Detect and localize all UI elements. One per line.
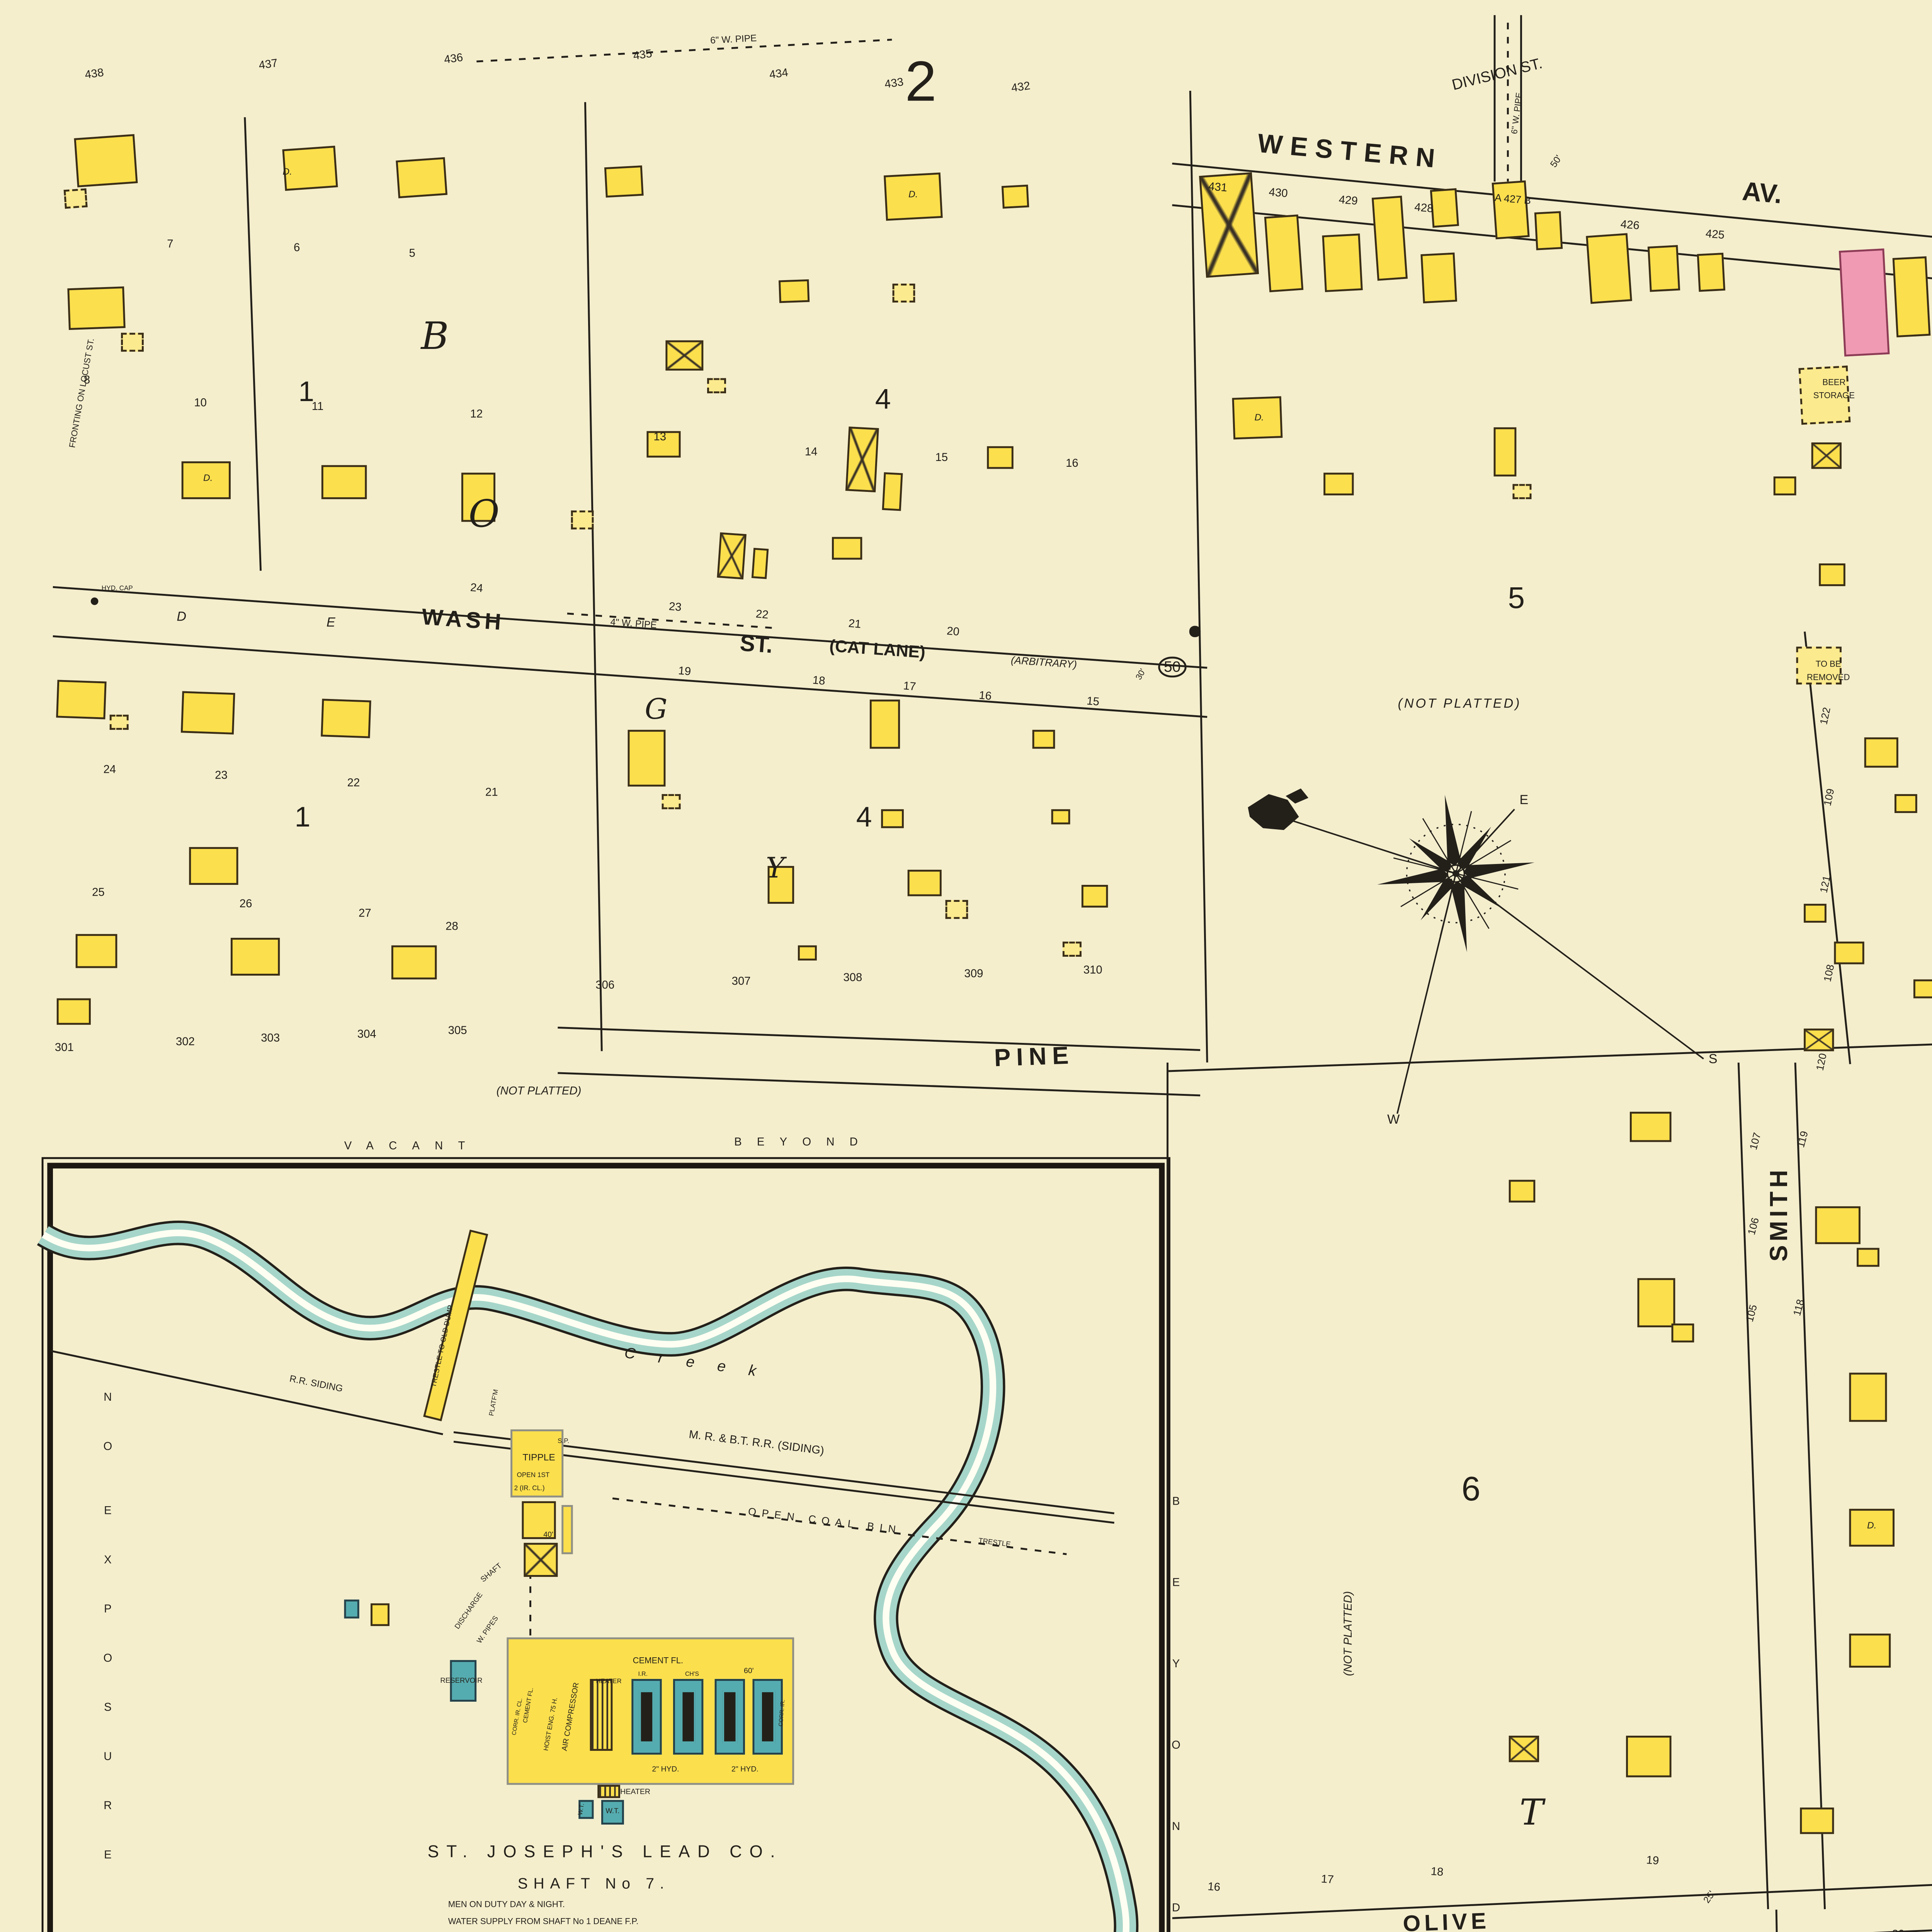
compass-s: S	[1709, 1054, 1718, 1068]
plat-note: (NOT PLATTED)	[1344, 1591, 1356, 1676]
building-footprint	[1774, 476, 1796, 495]
building-footprint	[597, 1785, 620, 1798]
lot-number: 302	[176, 1038, 195, 1050]
building-footprint	[1264, 214, 1304, 292]
building-footprint	[1638, 1278, 1675, 1327]
building-footprint	[561, 1505, 573, 1554]
building-footprint	[1834, 942, 1864, 964]
lot-number: 430	[1268, 188, 1288, 202]
block-letter: E	[327, 617, 335, 631]
building-footprint	[1494, 427, 1517, 476]
lot-number: 14	[805, 448, 818, 460]
lot-number: 306	[595, 981, 614, 993]
vert-letter: E	[104, 1851, 112, 1863]
lot-number: 20	[946, 627, 960, 640]
lot-number: 13	[653, 433, 666, 445]
lot-number: 19	[678, 667, 691, 680]
street-label-wash-st: ST.	[739, 632, 774, 658]
block-number: 4	[856, 804, 872, 833]
lot-number: 305	[448, 1026, 467, 1038]
building-footprint	[371, 1603, 389, 1626]
biz-label: BEER	[1822, 379, 1845, 388]
lot-number: 25	[92, 888, 105, 900]
block-number: 1	[294, 804, 310, 833]
building-footprint	[1586, 233, 1632, 304]
building-footprint	[57, 998, 91, 1025]
vert-letter: O	[103, 1654, 112, 1666]
building-footprint	[524, 1543, 558, 1577]
building-footprint	[1626, 1736, 1671, 1777]
plat-note: (NOT PLATTED)	[1398, 698, 1522, 712]
note: 2" HYD.	[731, 1766, 759, 1774]
lot-number: 19	[1646, 1856, 1659, 1869]
building-footprint	[1430, 188, 1459, 228]
note: CH'S	[685, 1672, 699, 1678]
lot-number: 7	[167, 240, 173, 252]
building-footprint	[1492, 180, 1530, 240]
compass-rose-icon	[1191, 671, 1759, 1144]
eagle-icon	[1248, 788, 1309, 830]
building-footprint	[946, 900, 968, 919]
building-footprint	[832, 537, 862, 560]
lot-number: 23	[668, 602, 682, 616]
company-note: MEN ON DUTY DAY & NIGHT.	[448, 1901, 565, 1910]
note: HEATER	[620, 1789, 650, 1796]
vert-letter: E	[104, 1507, 112, 1519]
lot-number: 17	[903, 682, 916, 695]
lot-number: 22	[755, 610, 769, 623]
building-footprint	[1420, 252, 1457, 303]
lot-number: 303	[261, 1034, 280, 1046]
vert-letter: N	[1172, 1822, 1180, 1834]
street-label-smith: SMITH	[1766, 1166, 1792, 1262]
lot-number: 15	[1086, 697, 1100, 710]
building-footprint	[1857, 1248, 1879, 1267]
building-footprint	[110, 715, 129, 730]
lot-number: 21	[848, 619, 861, 633]
building-footprint	[639, 1690, 654, 1743]
building-footprint	[665, 340, 703, 371]
lot-number: 15	[935, 454, 948, 466]
sheet-ref-2: 2	[905, 53, 937, 113]
building-footprint	[628, 730, 666, 787]
creek-outline	[44, 1233, 1126, 1932]
building-footprint	[1913, 980, 1932, 998]
note: TO BE	[1816, 661, 1841, 670]
building-footprint	[893, 284, 915, 303]
lot-number: 18	[1430, 1867, 1444, 1880]
lot-number: 27	[359, 909, 371, 921]
lot-number: 22	[347, 779, 360, 791]
note: 2" HYD.	[652, 1766, 679, 1774]
building-footprint	[1800, 1808, 1834, 1834]
company-note: WATER SUPPLY FROM SHAFT No 1 DEANE F.P.	[448, 1918, 639, 1927]
building-footprint	[1804, 1029, 1834, 1051]
building-footprint	[882, 472, 903, 511]
building-footprint	[56, 680, 107, 719]
vert-letter: R	[104, 1801, 112, 1813]
building-footprint	[707, 378, 726, 393]
building-footprint	[1509, 1180, 1536, 1202]
building-footprint	[321, 699, 371, 738]
street-label-pine: PINE	[994, 1043, 1075, 1071]
lot-number: 24	[469, 583, 483, 597]
biz-label: TIPPLE	[522, 1455, 555, 1465]
biz-label: D.	[908, 192, 918, 202]
building-footprint	[1864, 737, 1898, 767]
building-footprint	[1839, 248, 1890, 357]
building-footprint	[717, 532, 747, 580]
building-footprint	[391, 946, 437, 980]
building-footprint	[1804, 904, 1827, 923]
plat-letter: Y	[766, 855, 784, 884]
compass-w: W	[1387, 1114, 1400, 1128]
compass-e: E	[1519, 795, 1528, 809]
building-footprint	[604, 165, 644, 197]
width-marker: 40'	[543, 1531, 553, 1539]
building-footprint	[1372, 196, 1408, 281]
building-footprint	[1513, 484, 1532, 499]
plat-letter: O	[469, 495, 500, 534]
vert-letter: D	[1172, 1904, 1180, 1916]
lot-number: 28	[446, 922, 458, 934]
building-footprint	[344, 1600, 359, 1619]
building-footprint	[760, 1690, 775, 1743]
lot-number: 16	[1066, 459, 1078, 471]
lot-number: 5	[409, 249, 415, 261]
building-footprint	[779, 279, 810, 303]
building-footprint	[662, 794, 681, 809]
map-line	[1166, 1063, 1168, 1932]
company-title: ST. JOSEPH'S LEAD CO.	[427, 1844, 782, 1862]
building-footprint	[121, 333, 144, 352]
vert-letter: S	[104, 1703, 112, 1715]
note: S.P.	[558, 1439, 569, 1446]
building-footprint	[1811, 442, 1842, 469]
lot-number: 307	[732, 977, 751, 989]
lot-number: 8	[84, 376, 90, 388]
building-footprint	[1895, 794, 1917, 813]
building-footprint	[681, 1690, 696, 1743]
lot-number: 17	[1321, 1875, 1334, 1888]
building-footprint	[1509, 1736, 1539, 1762]
building-footprint	[1051, 809, 1070, 824]
note: 2 (IR. CL.)	[514, 1486, 545, 1493]
lot-number: 429	[1338, 196, 1358, 209]
plat-note: (NOT PLATTED)	[497, 1087, 582, 1099]
block-letter: D	[177, 611, 186, 625]
company-sub: SHAFT No 7.	[518, 1877, 670, 1893]
building-footprint	[231, 938, 280, 976]
biz-label: D.	[283, 169, 292, 179]
building-footprint	[64, 188, 88, 209]
building-footprint	[571, 510, 594, 529]
vert-letter: O	[103, 1442, 112, 1454]
vert-letter: E	[1172, 1578, 1180, 1590]
plat-letter: G	[645, 696, 668, 726]
building-footprint	[1819, 563, 1845, 586]
building-footprint	[845, 427, 879, 492]
lot-number: 304	[357, 1030, 376, 1042]
note: W.T.	[605, 1808, 619, 1815]
building-footprint	[1063, 942, 1082, 957]
width-marker: 60'	[744, 1667, 754, 1675]
note: HEATER	[596, 1679, 622, 1686]
building-footprint	[1815, 1206, 1860, 1244]
lot-number: 21	[485, 788, 498, 800]
building-footprint	[1849, 1634, 1891, 1668]
lot-number: 16	[1207, 1883, 1221, 1895]
building-footprint	[67, 286, 125, 330]
lot-number: 431	[1207, 182, 1228, 196]
biz-label: D.	[1255, 415, 1264, 425]
note-beyond: BEYOND	[734, 1138, 873, 1150]
vert-letter: U	[104, 1752, 112, 1764]
lot-number: 18	[812, 676, 825, 689]
building-footprint	[1893, 256, 1931, 337]
plat-letter: T	[1519, 1796, 1543, 1834]
building-footprint	[798, 946, 817, 961]
lot-number: 12	[470, 410, 483, 422]
hydrant-label: HYD. CAP	[102, 587, 133, 594]
lot-number: 426	[1620, 220, 1640, 234]
vert-letter: N	[104, 1393, 112, 1405]
street-label-wash: WASH	[421, 605, 505, 635]
building-footprint	[396, 157, 447, 199]
building-footprint	[870, 699, 900, 748]
building-footprint	[76, 934, 117, 968]
vert-letter: X	[104, 1556, 112, 1568]
lot-number: 301	[55, 1043, 74, 1055]
note-vacant: VACANT	[344, 1142, 480, 1154]
building-footprint	[1082, 885, 1108, 908]
hydrant-dot	[1190, 626, 1200, 637]
building-footprint	[181, 691, 235, 735]
biz-label: D.	[203, 475, 213, 485]
lot-number: 308	[843, 973, 862, 985]
map-line	[1494, 15, 1496, 182]
street-label-olive: OLIVE	[1403, 1910, 1490, 1932]
building-footprint	[1322, 233, 1362, 292]
note: CEMENT FL.	[633, 1658, 684, 1667]
lot-number: 425	[1705, 230, 1725, 243]
biz-label: RESERVOIR	[440, 1677, 482, 1684]
note: I.R.	[638, 1672, 648, 1678]
block-number: 6	[1461, 1472, 1480, 1508]
lot-number: 309	[964, 969, 983, 981]
block-number: 4	[875, 386, 891, 416]
vert-letter: P	[104, 1605, 112, 1617]
building-footprint	[1697, 253, 1726, 292]
building-footprint	[590, 1679, 613, 1751]
building-footprint	[1323, 473, 1354, 495]
building-footprint	[74, 134, 138, 187]
lot-number: 29	[1892, 1930, 1905, 1932]
building-footprint	[189, 847, 238, 885]
vert-letter: B	[1172, 1497, 1180, 1509]
building-footprint	[1534, 211, 1563, 250]
block-number: 5	[1508, 585, 1525, 617]
building-footprint	[1002, 185, 1029, 209]
biz-label: D.	[1867, 1523, 1876, 1533]
lot-number: 11	[312, 403, 324, 415]
note: REMOVED	[1807, 674, 1850, 683]
lot-number: 23	[215, 771, 228, 783]
map-line	[1507, 23, 1509, 182]
building-footprint	[1672, 1323, 1694, 1342]
building-footprint	[722, 1690, 737, 1743]
building-footprint	[1648, 245, 1680, 292]
plat-letter: B	[421, 317, 449, 357]
vert-letter: O	[1172, 1741, 1180, 1753]
lot-number: 24	[103, 765, 116, 777]
building-footprint	[752, 548, 769, 579]
building-footprint	[987, 446, 1014, 469]
sanborn-map-sheet: C r e e k	[0, 0, 1932, 1932]
biz-label: STORAGE	[1813, 393, 1855, 401]
lot-number: 310	[1083, 966, 1102, 978]
building-footprint	[881, 809, 904, 828]
lot-number: 16	[978, 691, 992, 704]
lot-number: 6	[294, 243, 300, 255]
building-footprint	[1032, 730, 1055, 749]
street-label-western-av: AV.	[1741, 177, 1783, 209]
vert-letter: Y	[1172, 1660, 1180, 1672]
lot-number: 428	[1414, 203, 1434, 217]
lot-number: 10	[194, 399, 207, 411]
building-footprint	[908, 870, 942, 896]
building-footprint	[321, 465, 367, 499]
lot-number: 26	[240, 900, 252, 912]
building-footprint	[1849, 1372, 1887, 1422]
note: OPEN 1ST	[517, 1473, 550, 1480]
